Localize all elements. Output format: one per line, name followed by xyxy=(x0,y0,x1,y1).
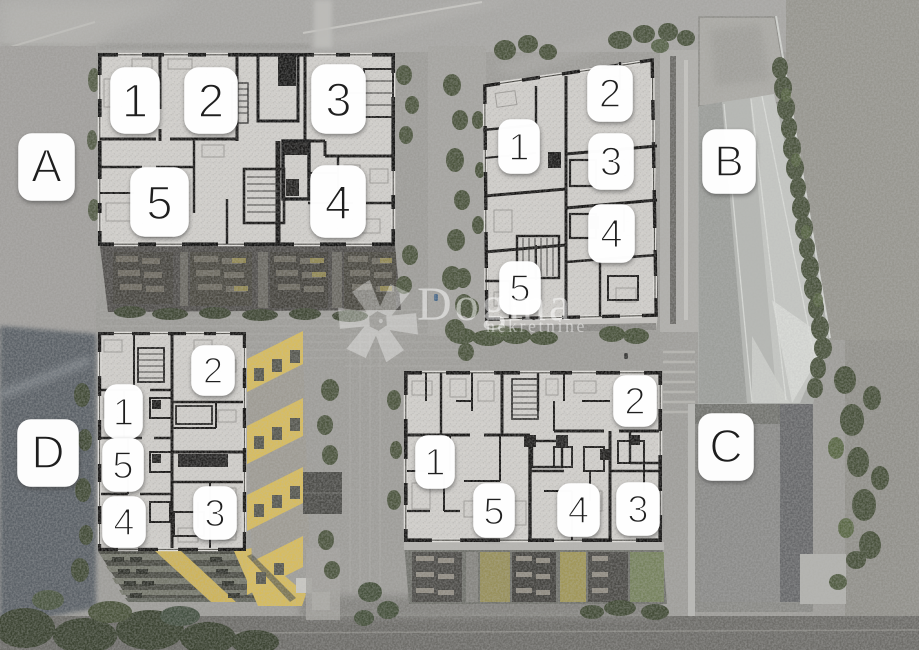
svg-text:5: 5 xyxy=(146,176,172,229)
svg-text:3: 3 xyxy=(325,73,351,126)
svg-text:1: 1 xyxy=(122,74,148,127)
svg-text:5: 5 xyxy=(483,491,504,533)
svg-text:1: 1 xyxy=(508,127,529,169)
svg-text:B: B xyxy=(714,137,743,186)
svg-text:5: 5 xyxy=(112,445,133,487)
svg-text:3: 3 xyxy=(204,493,225,535)
svg-text:1: 1 xyxy=(113,392,134,434)
svg-text:2: 2 xyxy=(624,381,645,423)
svg-text:C: C xyxy=(709,420,742,472)
svg-text:3: 3 xyxy=(627,489,648,531)
svg-text:A: A xyxy=(31,140,62,192)
svg-text:1: 1 xyxy=(424,442,445,484)
svg-text:2: 2 xyxy=(198,74,224,127)
svg-text:3: 3 xyxy=(600,140,622,184)
svg-text:4: 4 xyxy=(113,502,134,544)
svg-text:D: D xyxy=(31,426,64,478)
svg-text:4: 4 xyxy=(325,176,351,229)
svg-text:2: 2 xyxy=(599,72,621,116)
svg-text:nekretnine: nekretnine xyxy=(486,316,587,336)
svg-text:2: 2 xyxy=(203,350,223,391)
svg-text:4: 4 xyxy=(600,212,622,256)
svg-text:4: 4 xyxy=(568,490,589,532)
